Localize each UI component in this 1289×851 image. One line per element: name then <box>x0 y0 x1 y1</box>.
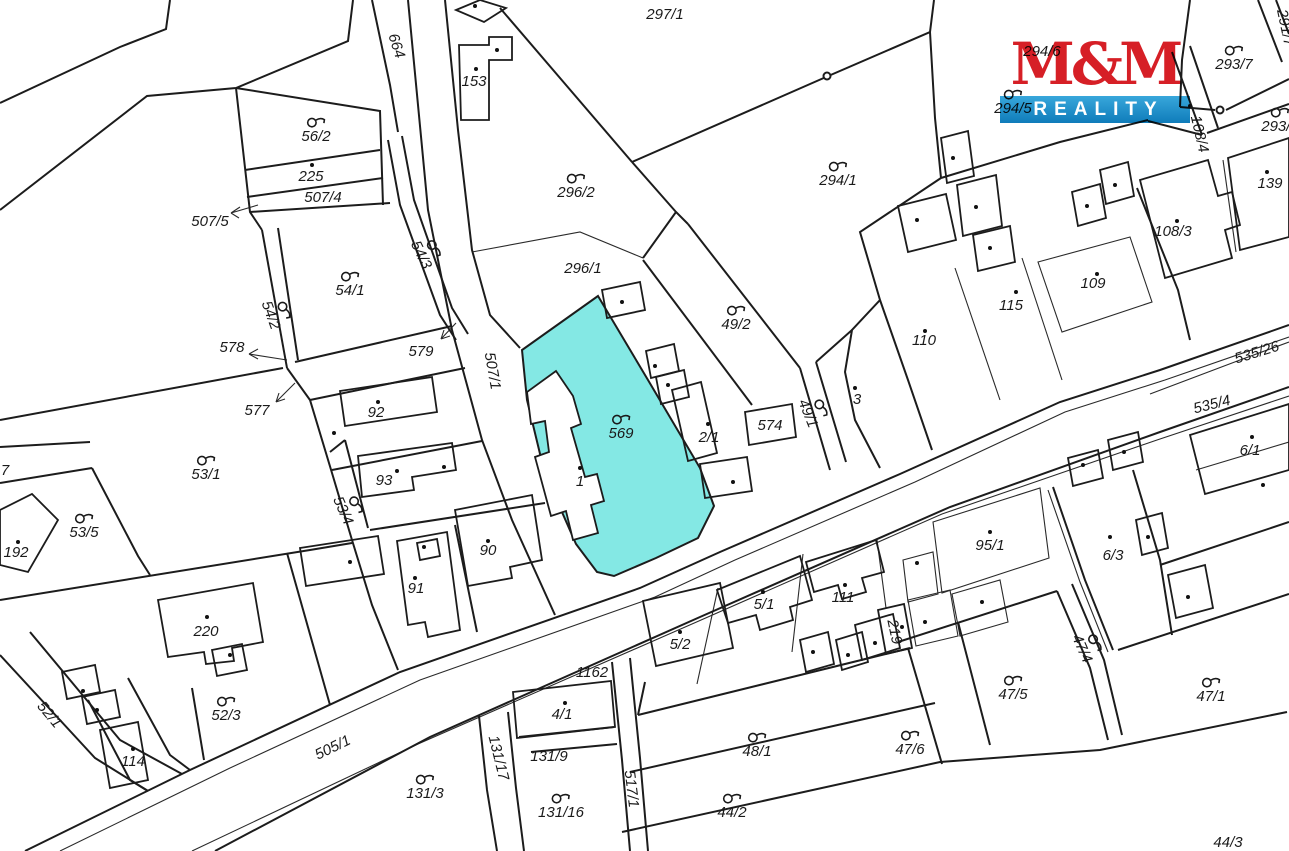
cadastral-map-canvas[interactable]: 297/166415356/2225507/4507/554/354/1296/… <box>0 0 1289 851</box>
mm-reality-logo: M&M REALITY <box>1000 34 1190 123</box>
logo-reality-band: REALITY <box>1000 96 1190 123</box>
arrow-578 <box>249 349 287 360</box>
logo-mm-text: M&M <box>1000 34 1190 94</box>
arrow-577 <box>276 383 295 402</box>
map-linework <box>0 0 1289 851</box>
